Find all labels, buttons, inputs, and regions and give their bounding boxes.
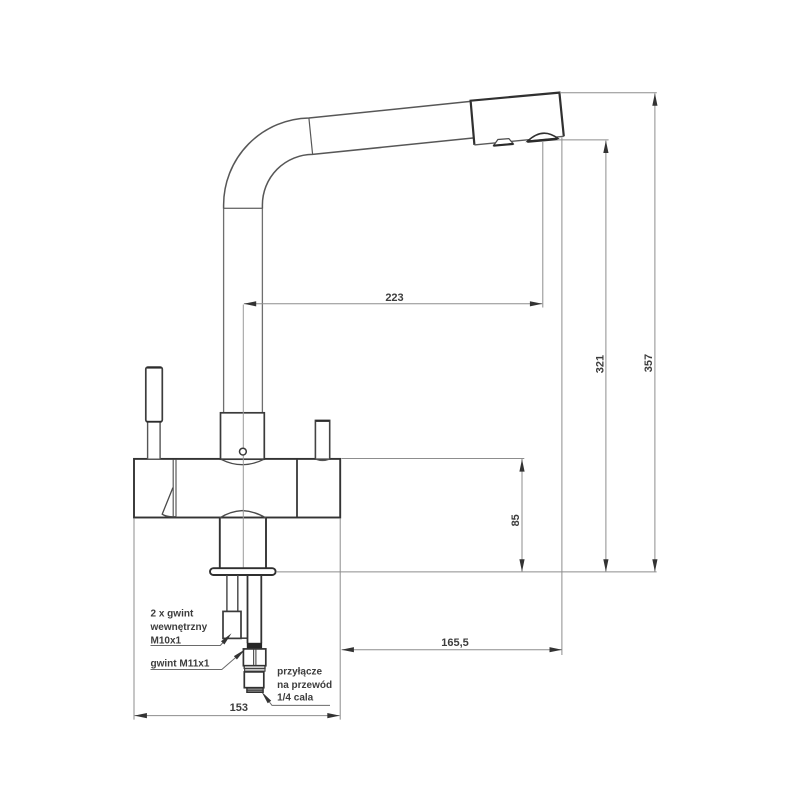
svg-text:223: 223 (385, 292, 403, 304)
svg-text:321: 321 (595, 355, 607, 373)
svg-text:1/4 cala: 1/4 cala (277, 692, 314, 703)
svg-text:85: 85 (510, 514, 522, 526)
svg-text:przyłącze: przyłącze (277, 666, 322, 677)
svg-text:153: 153 (230, 702, 248, 714)
svg-text:M10x1: M10x1 (151, 636, 182, 647)
svg-text:wewnętrzny: wewnętrzny (150, 622, 208, 633)
svg-text:357: 357 (643, 354, 655, 372)
svg-text:gwint M11x1: gwint M11x1 (151, 659, 210, 670)
svg-text:2 x gwint: 2 x gwint (151, 609, 194, 620)
svg-text:na przewód: na przewód (277, 680, 332, 691)
svg-text:165,5: 165,5 (441, 637, 469, 649)
